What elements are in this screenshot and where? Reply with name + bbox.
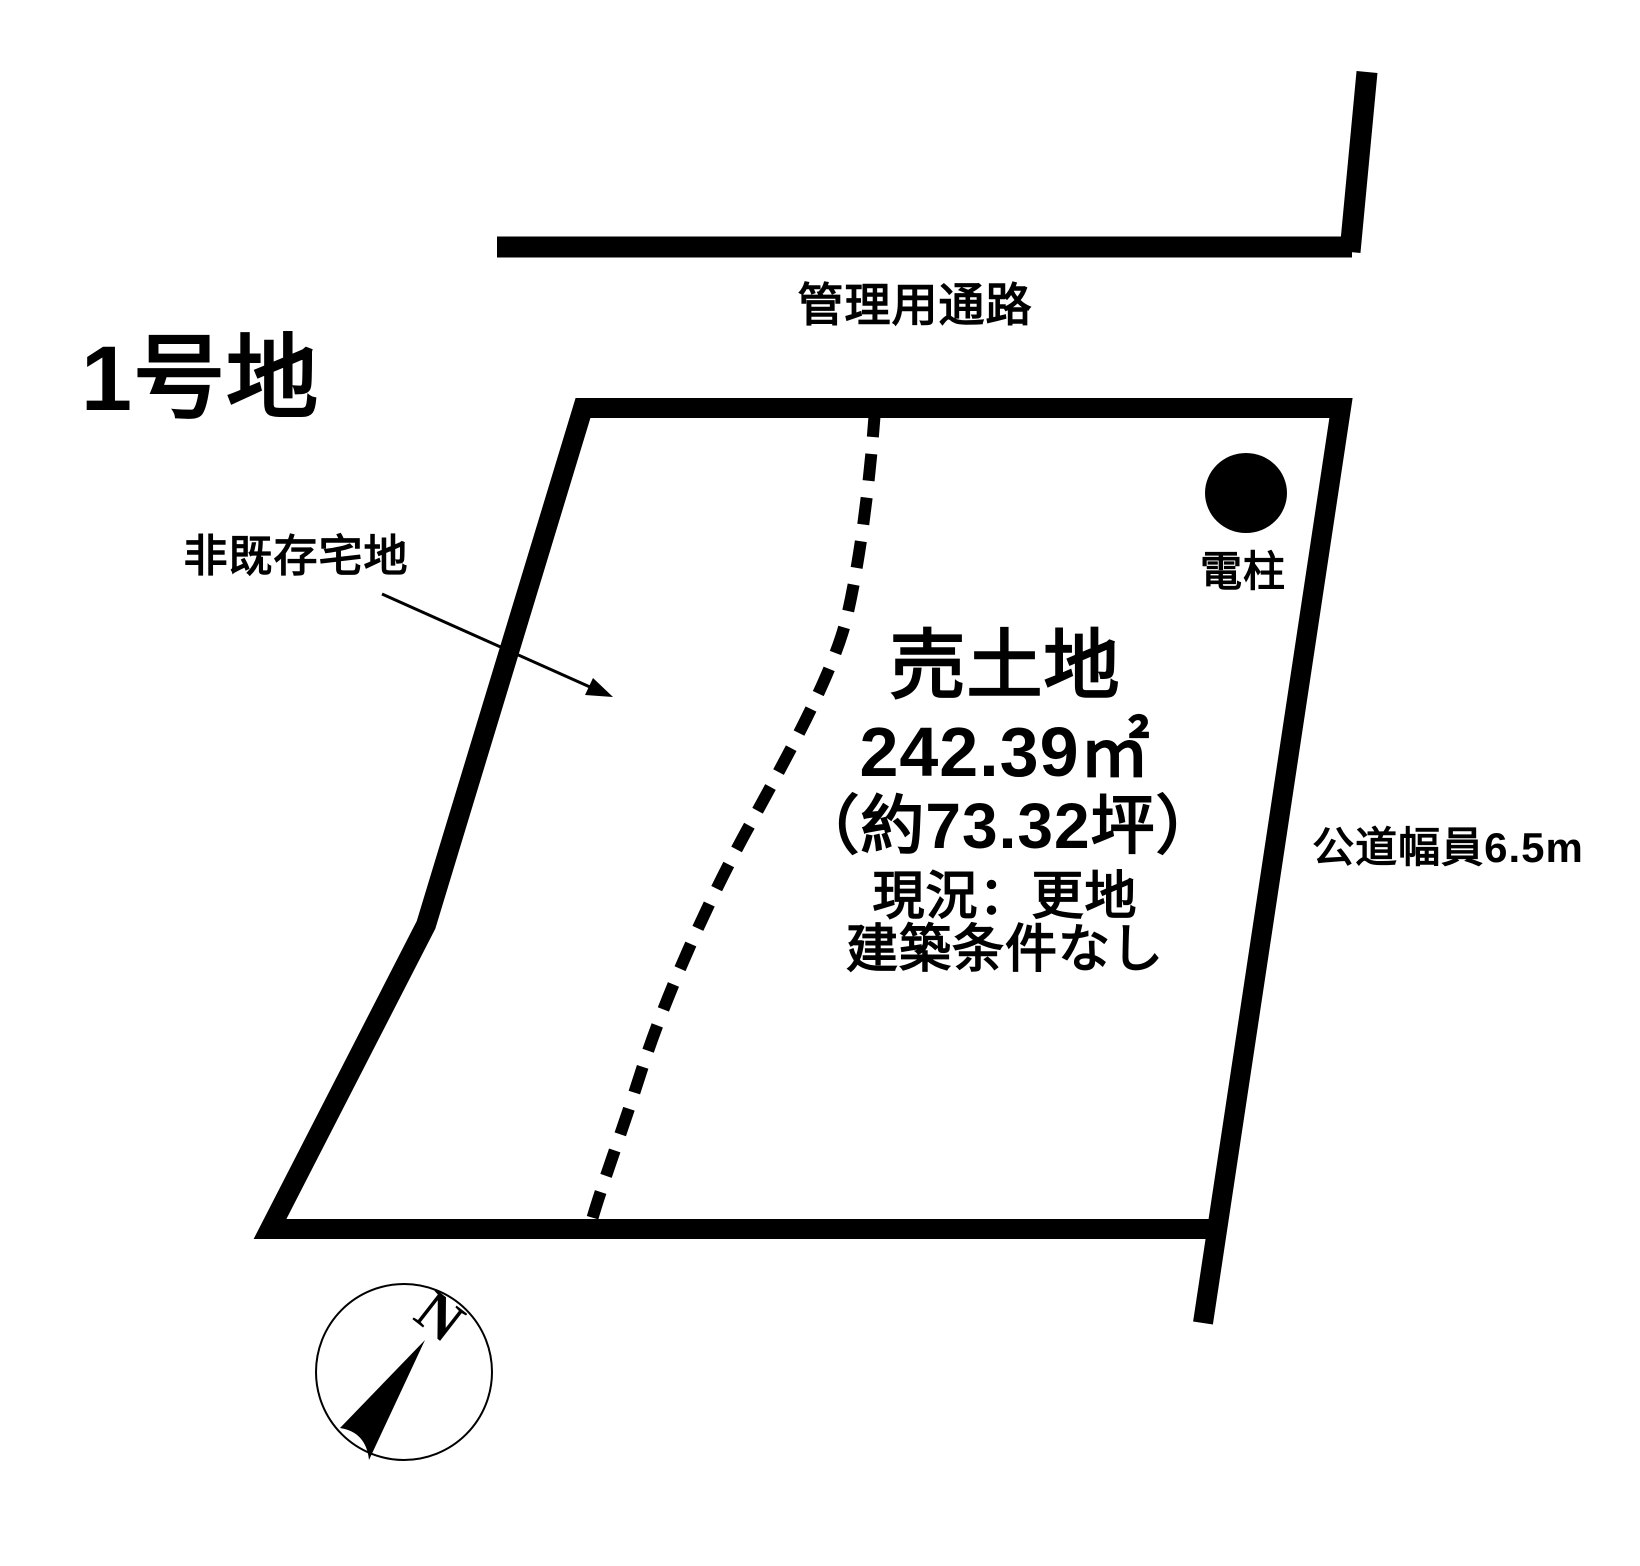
- public-road-width-label: 公道幅員6.5m: [1312, 827, 1584, 869]
- compass: N: [316, 1277, 492, 1460]
- sale-type-label: 売土地: [890, 629, 1121, 705]
- plan-drawing: N: [0, 0, 1640, 1566]
- area-sqm-label: 242.39㎡: [859, 717, 1150, 787]
- lot-number-label: 1号地: [81, 333, 319, 425]
- building-conditions-label: 建築条件なし: [846, 924, 1164, 976]
- area-tsubo-label: （約73.32坪）: [795, 794, 1220, 858]
- current-state-label: 現況：更地: [872, 871, 1137, 923]
- non-existing-residential-land-label: 非既存宅地: [184, 535, 409, 579]
- management-passage-label: 管理用通路: [798, 282, 1033, 328]
- annotation-arrow-line: [382, 594, 590, 687]
- annotation-arrowhead: [585, 678, 613, 697]
- utility-pole-label: 電柱: [1200, 551, 1286, 593]
- site-plan-canvas: N 1号地 管理用通路 非既存宅地 電柱 公道幅員6.5m 売土地 242.39…: [0, 0, 1640, 1566]
- passage-road-line: [497, 72, 1367, 252]
- utility-pole-dot: [1205, 453, 1287, 533]
- parcel-outline: [270, 408, 1341, 1323]
